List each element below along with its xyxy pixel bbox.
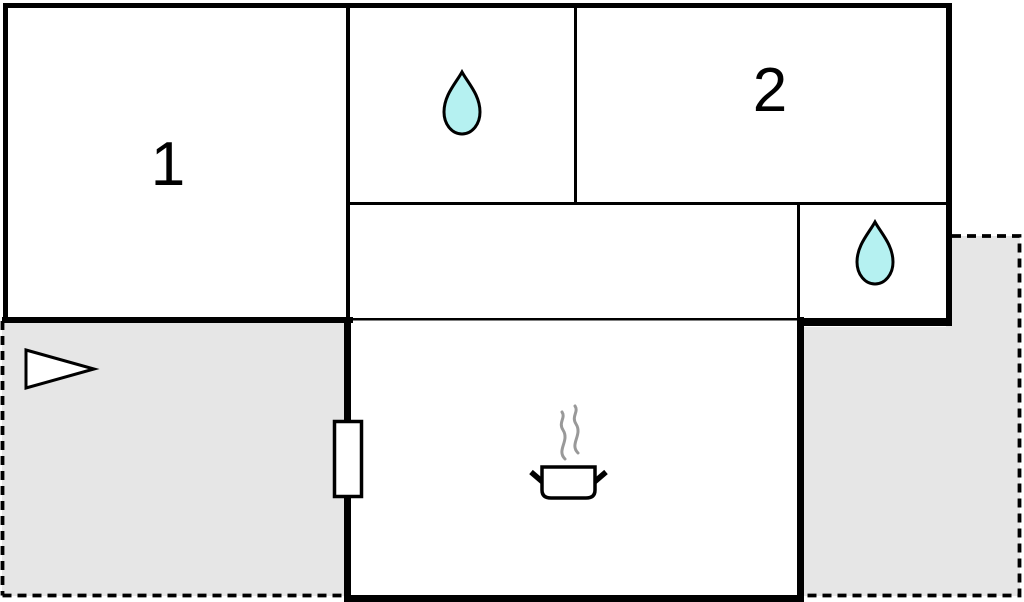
door-icon xyxy=(335,422,362,497)
wall-bathroom-right-bottom xyxy=(797,318,952,326)
wall-room1-bottom xyxy=(2,317,353,323)
wall-kitchen-bottom xyxy=(344,595,804,602)
wall-bathroom-right-left xyxy=(797,204,800,319)
room-2-label: 2 xyxy=(753,56,787,125)
wall-bathroom-top-right xyxy=(574,3,577,204)
wall-hallway-bottom xyxy=(351,318,797,321)
pot-body xyxy=(542,467,595,498)
wall-outer-top xyxy=(3,3,952,8)
wall-outer-left xyxy=(3,3,8,323)
wall-hallway-top xyxy=(348,202,948,205)
wall-room1-right xyxy=(346,3,350,319)
room-1-label: 1 xyxy=(151,130,185,199)
floor-plan: 1 2 xyxy=(0,0,1024,602)
wall-outer-right xyxy=(946,3,952,326)
wall-kitchen-right xyxy=(797,317,804,602)
